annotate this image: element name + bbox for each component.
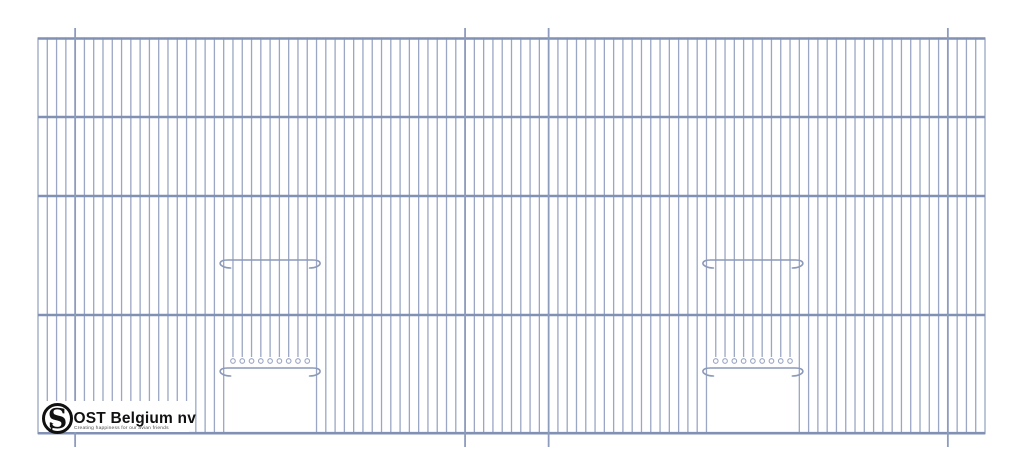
door-slide-rod [703,368,803,376]
logo-monogram-j: J [48,423,53,433]
wire-end-loop [259,359,264,364]
wire-end-loop [713,359,718,364]
wire-end-loop [778,359,783,364]
cage-front-drawing: S J OST Belgium nv Creating happiness fo… [0,0,1024,473]
wire-end-loop [249,359,254,364]
wire-end-loop [268,359,273,364]
wire-end-loop [305,359,310,364]
logo: S J OST Belgium nv Creating happiness fo… [39,401,196,435]
wire-end-loop [788,359,793,364]
wire-end-loop [231,359,236,364]
logo-company-name: OST Belgium nv [74,410,197,427]
wire-grid [38,37,985,434]
wire-end-loop [240,359,245,364]
wire-end-loop [732,359,737,364]
wire-end-loop [741,359,746,364]
wire-end-loop [286,359,291,364]
logo-tagline: Creating happiness for our avian friends [74,425,169,431]
wire-end-loop [769,359,774,364]
wire-end-loop [296,359,301,364]
wire-end-loop [723,359,728,364]
drawing-canvas: S J OST Belgium nv Creating happiness fo… [0,0,1024,473]
door-slide-rod [220,368,320,376]
wire-end-loop [760,359,765,364]
wire-end-loop [277,359,282,364]
wire-end-loop [751,359,756,364]
